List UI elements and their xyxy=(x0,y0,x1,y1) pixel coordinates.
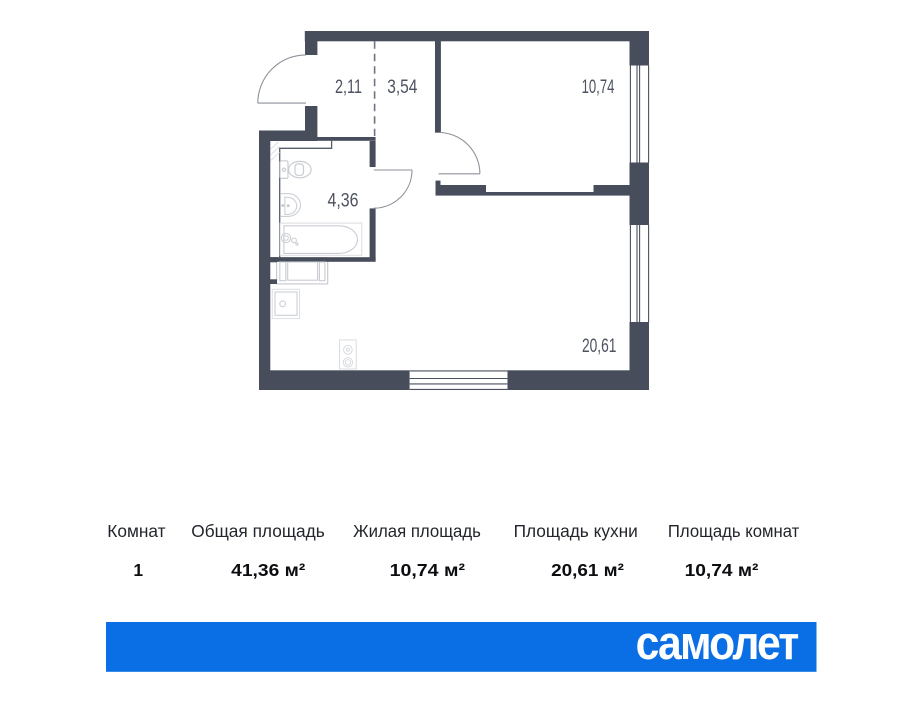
svg-text:3,54: 3,54 xyxy=(387,75,417,97)
svg-text:20,61: 20,61 xyxy=(582,335,616,357)
svg-text:Комнат: Комнат xyxy=(107,521,165,541)
svg-text:Жилая площадь: Жилая площадь xyxy=(353,522,481,541)
svg-text:Площадь комнат: Площадь комнат xyxy=(668,522,800,541)
svg-text:20,61 м²: 20,61 м² xyxy=(551,560,624,579)
svg-text:2,11: 2,11 xyxy=(335,76,362,97)
svg-text:10,74: 10,74 xyxy=(582,77,615,98)
svg-text:10,74 м²: 10,74 м² xyxy=(685,560,759,580)
svg-text:4,36: 4,36 xyxy=(327,189,358,211)
svg-text:1: 1 xyxy=(133,560,143,580)
svg-text:Общая площадь: Общая площадь xyxy=(191,521,325,541)
svg-text:41,36 м²: 41,36 м² xyxy=(231,560,305,580)
svg-text:Площадь кухни: Площадь кухни xyxy=(514,521,638,541)
svg-text:10,74 м²: 10,74 м² xyxy=(390,560,465,580)
svg-text:самолет: самолет xyxy=(636,616,799,670)
